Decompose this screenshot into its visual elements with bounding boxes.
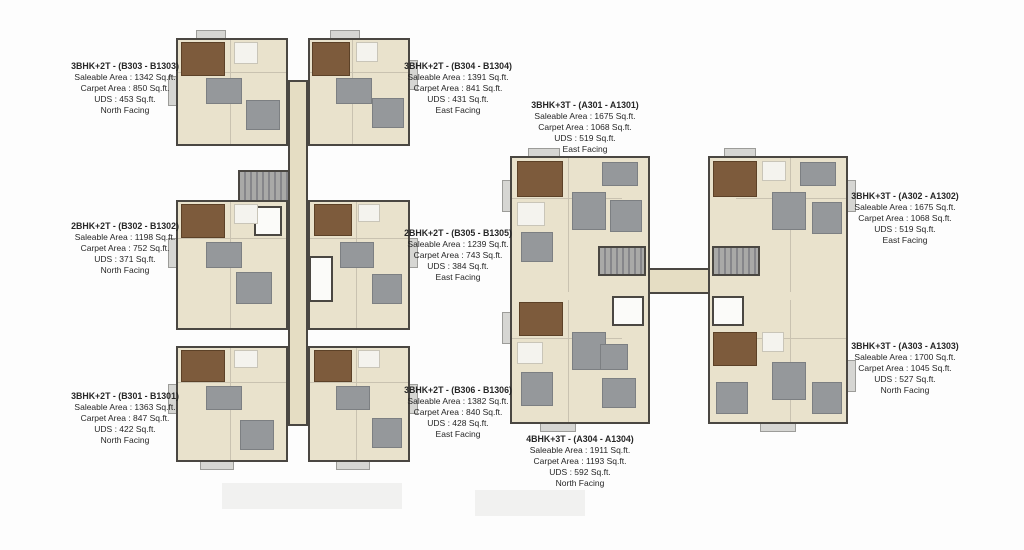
- unit-saleable-area: Saleable Area : 1391 Sq.ft.: [383, 72, 533, 83]
- master-bedroom: [713, 332, 757, 366]
- a-block-right-lift: [712, 296, 744, 326]
- unit-saleable-area: Saleable Area : 1198 Sq.ft.: [50, 232, 200, 243]
- living-room-furniture: [336, 386, 370, 410]
- master-bedroom: [519, 302, 563, 336]
- unit-title: 3BHK+3T - (A302 - A1302): [825, 191, 985, 202]
- unit-saleable-area: Saleable Area : 1911 Sq.ft.: [500, 445, 660, 456]
- bathroom: [234, 42, 258, 64]
- unit-uds: UDS : 519 Sq.ft.: [505, 133, 665, 144]
- unit-uds: UDS : 453 Sq.ft.: [50, 94, 200, 105]
- a-block-right-staircase: [712, 246, 760, 276]
- unit-facing: North Facing: [500, 478, 660, 489]
- interior-wall: [568, 300, 569, 422]
- unit-title: 2BHK+2T - (B305 - B1305): [383, 228, 533, 239]
- unit-label-a301: 3BHK+3T - (A301 - A1301) Saleable Area :…: [505, 100, 665, 155]
- unit-label-a304: 4BHK+3T - (A304 - A1304) Saleable Area :…: [500, 434, 660, 489]
- living-room-furniture: [336, 78, 372, 104]
- unit-uds: UDS : 422 Sq.ft.: [50, 424, 200, 435]
- master-bedroom: [517, 161, 563, 197]
- unit-carpet-area: Carpet Area : 840 Sq.ft.: [383, 407, 533, 418]
- bedroom-furniture: [716, 382, 748, 414]
- unit-uds: UDS : 527 Sq.ft.: [825, 374, 985, 385]
- unit-uds: UDS : 371 Sq.ft.: [50, 254, 200, 265]
- unit-facing: North Facing: [50, 265, 200, 276]
- living-room-furniture: [206, 242, 242, 268]
- master-bedroom: [314, 204, 352, 236]
- floorplan-sheet: 3BHK+2T - (B303 - B1303) Saleable Area :…: [0, 0, 1024, 550]
- unit-facing: East Facing: [383, 272, 533, 283]
- bathroom: [762, 161, 786, 181]
- unit-uds: UDS : 428 Sq.ft.: [383, 418, 533, 429]
- b-block-lift-2: [309, 256, 333, 302]
- bathroom: [517, 342, 543, 364]
- interior-wall: [568, 158, 569, 292]
- unit-title: 3BHK+3T - (A303 - A1303): [825, 341, 985, 352]
- unit-label-b301: 3BHK+2T - (B301 - B1301) Saleable Area :…: [50, 391, 200, 446]
- unit-facing: North Facing: [50, 435, 200, 446]
- bedroom-furniture: [240, 420, 274, 450]
- unit-title: 3BHK+2T - (B306 - B1306): [383, 385, 533, 396]
- ground-shadow-band: [475, 490, 585, 516]
- bathroom: [356, 42, 378, 62]
- bathroom: [358, 204, 380, 222]
- interior-wall: [178, 382, 286, 383]
- unit-title: 3BHK+2T - (B301 - B1301): [50, 391, 200, 402]
- b-block-staircase: [238, 170, 290, 202]
- unit-title: 3BHK+2T - (B303 - B1303): [50, 61, 200, 72]
- master-bedroom: [314, 350, 352, 382]
- unit-uds: UDS : 384 Sq.ft.: [383, 261, 533, 272]
- ground-shadow-band: [222, 483, 402, 509]
- unit-facing: East Facing: [825, 235, 985, 246]
- a-block-left-lift: [612, 296, 644, 326]
- living-room-furniture: [572, 192, 606, 230]
- unit-saleable-area: Saleable Area : 1675 Sq.ft.: [505, 111, 665, 122]
- bedroom-furniture: [610, 200, 642, 232]
- unit-title: 3BHK+3T - (A301 - A1301): [505, 100, 665, 111]
- kitchen-counter: [800, 162, 836, 186]
- interior-wall: [790, 300, 791, 422]
- unit-carpet-area: Carpet Area : 1193 Sq.ft.: [500, 456, 660, 467]
- unit-saleable-area: Saleable Area : 1675 Sq.ft.: [825, 202, 985, 213]
- bathroom: [234, 350, 258, 368]
- unit-saleable-area: Saleable Area : 1382 Sq.ft.: [383, 396, 533, 407]
- living-room-furniture: [772, 192, 806, 230]
- master-bedroom: [713, 161, 757, 197]
- unit-carpet-area: Carpet Area : 850 Sq.ft.: [50, 83, 200, 94]
- bathroom: [517, 202, 545, 226]
- bathroom: [358, 350, 380, 368]
- unit-carpet-area: Carpet Area : 1068 Sq.ft.: [825, 213, 985, 224]
- unit-label-b305: 2BHK+2T - (B305 - B1305) Saleable Area :…: [383, 228, 533, 283]
- bedroom-furniture: [236, 272, 272, 304]
- bathroom: [234, 204, 258, 224]
- unit-saleable-area: Saleable Area : 1342 Sq.ft.: [50, 72, 200, 83]
- unit-carpet-area: Carpet Area : 752 Sq.ft.: [50, 243, 200, 254]
- unit-facing: North Facing: [825, 385, 985, 396]
- living-room-furniture: [206, 78, 242, 104]
- unit-facing: North Facing: [50, 105, 200, 116]
- unit-uds: UDS : 519 Sq.ft.: [825, 224, 985, 235]
- unit-carpet-area: Carpet Area : 743 Sq.ft.: [383, 250, 533, 261]
- kitchen-counter: [602, 162, 638, 186]
- unit-title: 2BHK+2T - (B302 - B1302): [50, 221, 200, 232]
- unit-carpet-area: Carpet Area : 841 Sq.ft.: [383, 83, 533, 94]
- b-block-corridor: [288, 80, 308, 426]
- unit-uds: UDS : 592 Sq.ft.: [500, 467, 660, 478]
- interior-wall: [310, 382, 408, 383]
- living-room-furniture: [772, 362, 806, 400]
- a-block-left-staircase: [598, 246, 646, 276]
- unit-label-b306: 3BHK+2T - (B306 - B1306) Saleable Area :…: [383, 385, 533, 440]
- b-block-lift: [254, 206, 282, 236]
- living-room-furniture: [206, 386, 242, 410]
- dining-furniture: [600, 344, 628, 370]
- bedroom-furniture: [246, 100, 280, 130]
- a-block-corridor: [648, 268, 710, 294]
- living-room-furniture: [340, 242, 374, 268]
- unit-facing: East Facing: [505, 144, 665, 155]
- master-bedroom: [181, 350, 225, 382]
- bedroom-furniture: [602, 378, 636, 408]
- unit-label-b302: 2BHK+2T - (B302 - B1302) Saleable Area :…: [50, 221, 200, 276]
- unit-carpet-area: Carpet Area : 1068 Sq.ft.: [505, 122, 665, 133]
- unit-label-a303: 3BHK+3T - (A303 - A1303) Saleable Area :…: [825, 341, 985, 396]
- bathroom: [762, 332, 784, 352]
- unit-carpet-area: Carpet Area : 847 Sq.ft.: [50, 413, 200, 424]
- unit-title: 3BHK+2T - (B304 - B1304): [383, 61, 533, 72]
- unit-label-a302: 3BHK+3T - (A302 - A1302) Saleable Area :…: [825, 191, 985, 246]
- unit-title: 4BHK+3T - (A304 - A1304): [500, 434, 660, 445]
- unit-saleable-area: Saleable Area : 1700 Sq.ft.: [825, 352, 985, 363]
- master-bedroom: [312, 42, 350, 76]
- unit-label-b303: 3BHK+2T - (B303 - B1303) Saleable Area :…: [50, 61, 200, 116]
- unit-carpet-area: Carpet Area : 1045 Sq.ft.: [825, 363, 985, 374]
- unit-saleable-area: Saleable Area : 1239 Sq.ft.: [383, 239, 533, 250]
- unit-saleable-area: Saleable Area : 1363 Sq.ft.: [50, 402, 200, 413]
